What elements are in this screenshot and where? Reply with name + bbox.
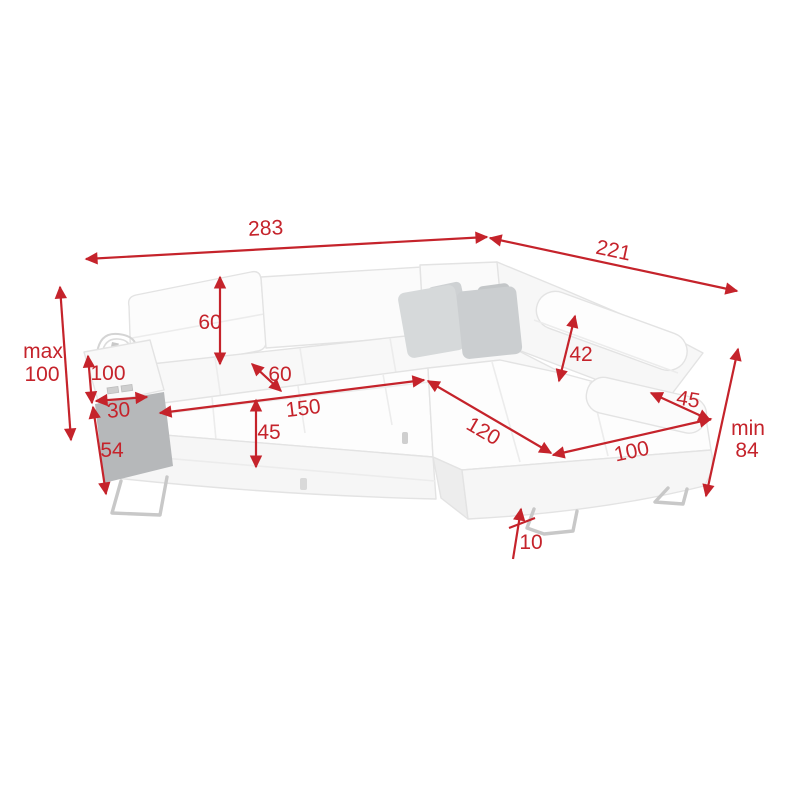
- armrest-top-width-label: 30: [106, 398, 131, 423]
- sofa-illustration: [84, 262, 712, 534]
- diagram-svg: 283 221 max 100 100 30 54 60: [0, 0, 800, 800]
- seat-height-label: 45: [257, 421, 280, 444]
- corner-pillows: [397, 281, 523, 360]
- base-foot: [300, 478, 307, 490]
- overall-width-label: 283: [248, 216, 284, 241]
- max-height-prefix: max: [23, 340, 63, 363]
- right-armrest-width-label: 45: [675, 386, 702, 413]
- seat-width-label: 150: [284, 395, 322, 422]
- leg-height-label: 10: [519, 531, 542, 554]
- seat-cushion-depth-label: 60: [268, 363, 291, 386]
- min-height-prefix: min: [731, 417, 765, 440]
- base-foot-2: [402, 432, 408, 444]
- backrest-height-label: 60: [198, 311, 221, 334]
- max-height-label: 100: [24, 363, 59, 386]
- dimension-overall-width: 283: [86, 216, 487, 259]
- armrest-height-label: 100: [90, 362, 125, 385]
- dimension-min-height: min 84: [706, 349, 765, 496]
- usb-socket-2: [121, 384, 133, 391]
- min-height-label: 84: [735, 439, 759, 462]
- sofa-dimension-diagram: 283 221 max 100 100 30 54 60: [0, 0, 800, 800]
- pillow-left: [397, 284, 466, 359]
- headrest-height-label: 42: [569, 343, 592, 366]
- dimension-max-height: max 100: [23, 287, 71, 440]
- pillow-right: [456, 286, 523, 360]
- usb-socket: [107, 386, 119, 393]
- armrest-side-height-label: 54: [100, 439, 124, 462]
